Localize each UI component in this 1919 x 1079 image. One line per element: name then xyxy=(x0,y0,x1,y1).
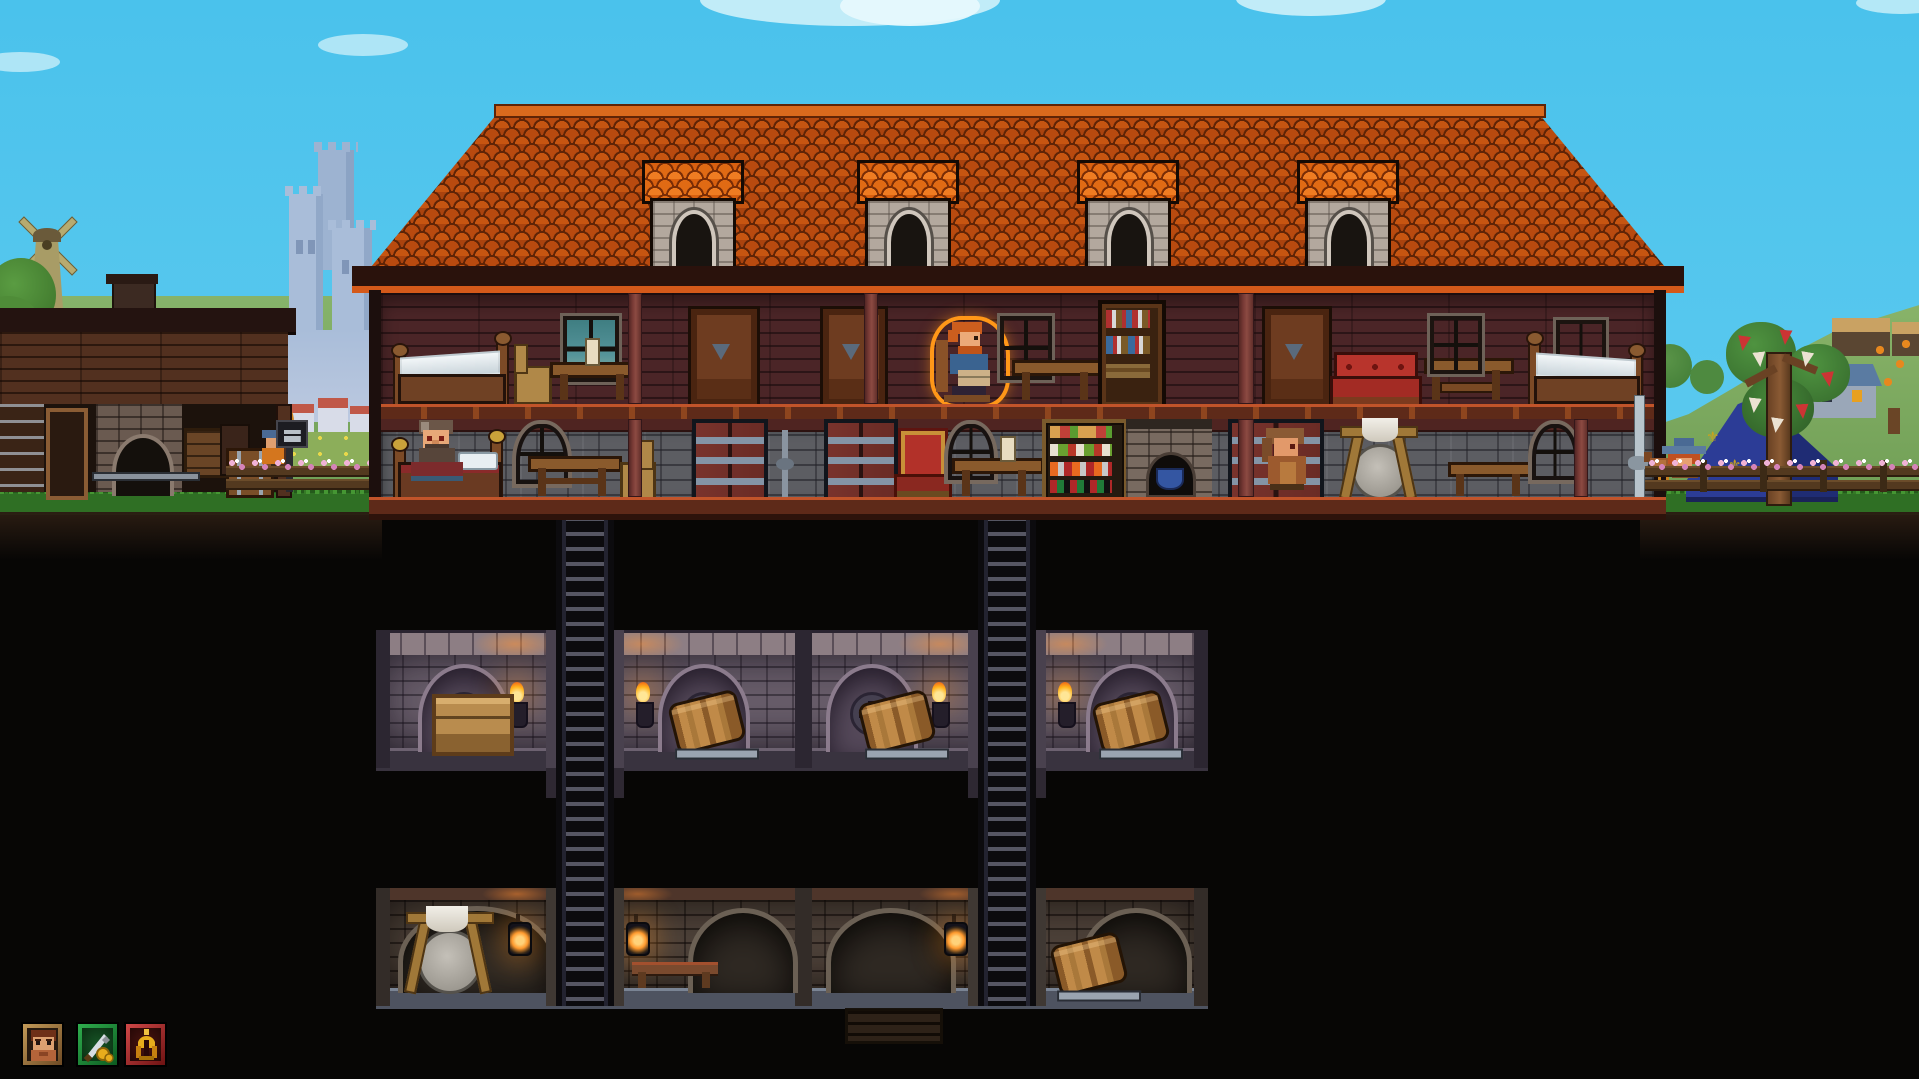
wall-pillar xyxy=(628,293,642,404)
eaves-fascia xyxy=(352,266,1684,286)
shaft-jamb xyxy=(614,630,624,768)
coin xyxy=(105,1054,113,1062)
shaft-jamb xyxy=(546,630,556,768)
steel-door[interactable] xyxy=(824,419,898,505)
sword-coins-button[interactable] xyxy=(76,1022,119,1067)
table-leg xyxy=(1018,470,1026,496)
wall-pillar xyxy=(1238,293,1254,404)
castle-window xyxy=(308,240,315,254)
wall-pillar xyxy=(1574,419,1588,497)
wall-pillar xyxy=(628,419,642,497)
chair-back xyxy=(936,340,948,392)
dormer-window xyxy=(1107,210,1151,266)
hanging-lantern-icon xyxy=(624,914,648,958)
shaft-jamb xyxy=(546,888,556,1006)
table-leg xyxy=(1432,370,1440,400)
chair-seat xyxy=(944,395,990,402)
chair-back xyxy=(640,440,654,470)
forge-chimney-cap xyxy=(106,274,158,284)
dormer-window xyxy=(887,210,931,266)
ladder-shaft[interactable] xyxy=(556,517,614,1006)
dormer-window xyxy=(1327,210,1371,266)
forge-bench-rail xyxy=(92,472,200,481)
eaves-lit-edge xyxy=(352,286,1684,293)
cloth-on-grindstone xyxy=(426,906,468,932)
ladder[interactable] xyxy=(562,517,608,1006)
basement2-right-wall xyxy=(1194,888,1208,1006)
villager-eye xyxy=(974,336,978,340)
basement2-left-wall xyxy=(376,888,390,1006)
shaft-frame-below xyxy=(1036,768,1046,798)
pantry-row-food xyxy=(1050,426,1112,438)
table-shelf xyxy=(540,478,604,484)
fence-rail xyxy=(1645,480,1919,491)
flower-row xyxy=(228,458,376,472)
villager-belt xyxy=(1270,484,1304,490)
upper-window xyxy=(1430,316,1482,374)
bench-leg xyxy=(1456,474,1464,496)
castle-window xyxy=(342,260,349,274)
wardrobe[interactable] xyxy=(688,306,760,408)
forge-door-frame[interactable] xyxy=(46,408,88,500)
dwarf-eye xyxy=(427,436,432,441)
basement1-lintel xyxy=(376,630,1208,655)
shaft-jamb xyxy=(968,630,978,768)
table-leg xyxy=(962,470,970,496)
bench-leg xyxy=(1512,474,1520,496)
flower-row xyxy=(1648,458,1918,472)
table-leg xyxy=(560,374,568,400)
basement2-lintel xyxy=(376,888,1208,900)
sword-coins-button-face xyxy=(82,1028,113,1061)
table-leg xyxy=(538,468,546,496)
gold-helmet-icon xyxy=(130,1028,163,1063)
basement1-left-wall xyxy=(376,630,390,768)
cauldron xyxy=(1156,468,1184,490)
villager-legs xyxy=(952,386,986,395)
dwarf-portrait-icon xyxy=(27,1028,60,1063)
ladder[interactable] xyxy=(984,517,1030,1006)
hanging-lantern-icon xyxy=(942,914,966,958)
portrait-eye xyxy=(36,1041,40,1045)
bed-frame[interactable] xyxy=(398,374,506,404)
hooded-villager[interactable] xyxy=(1258,428,1318,498)
dwarf-belt xyxy=(411,476,463,481)
helmet-slit xyxy=(144,1040,149,1056)
shaft-frame-below xyxy=(968,768,978,798)
portrait-mouth xyxy=(39,1052,48,1056)
shaft-frame-below xyxy=(614,768,624,798)
anvil-sign xyxy=(276,420,308,448)
table-leg xyxy=(598,468,606,496)
castle-window xyxy=(296,240,303,254)
shaft-jamb xyxy=(1036,888,1046,1006)
pantry-row-bottles xyxy=(1050,480,1112,493)
forge-roof xyxy=(0,308,296,335)
portrait-brow xyxy=(35,1039,41,1041)
bed-frame[interactable] xyxy=(1534,376,1640,404)
basement1-right-wall xyxy=(1194,630,1208,768)
bench[interactable] xyxy=(1440,382,1498,393)
shaft-jamb xyxy=(1036,630,1046,768)
blue-stained-window xyxy=(1532,424,1578,480)
helmet-base xyxy=(139,1056,154,1060)
portrait-brow xyxy=(46,1039,52,1041)
cloud xyxy=(1236,0,1386,16)
tool-rack[interactable] xyxy=(0,404,44,492)
portrait-button-face xyxy=(27,1028,58,1061)
castle-tower-crenellation xyxy=(314,142,358,152)
house-base-band xyxy=(369,497,1666,520)
chair-back xyxy=(514,344,528,374)
fruit-tree xyxy=(1868,330,1919,416)
table-leg xyxy=(1080,372,1088,400)
hat-brim xyxy=(1662,446,1706,454)
ladder-shaft[interactable] xyxy=(978,517,1036,1006)
castle-tower-crenellation xyxy=(328,220,376,230)
portrait-button[interactable] xyxy=(21,1022,64,1067)
shaft-jamb xyxy=(968,888,978,1006)
table-leg xyxy=(1492,370,1500,400)
hanging-lantern-icon xyxy=(506,914,530,958)
villager-apron xyxy=(1280,462,1296,484)
villager-eye xyxy=(1290,444,1295,449)
wardrobe[interactable] xyxy=(1262,306,1332,408)
pole-knob xyxy=(776,458,794,470)
fruit-tree-trunk xyxy=(1888,408,1900,434)
portrait-eye xyxy=(47,1041,51,1045)
cloud xyxy=(318,34,408,56)
villager-hair xyxy=(948,330,958,342)
sword-coins-icon xyxy=(82,1028,115,1063)
shaft-frame-below xyxy=(546,768,556,798)
cloud xyxy=(1856,0,1919,14)
cloud xyxy=(0,52,60,72)
wall-torch-icon xyxy=(632,682,654,728)
gold-helmet-button[interactable] xyxy=(124,1022,167,1067)
basement1-divider-wall xyxy=(795,630,812,768)
storage-crate[interactable] xyxy=(432,694,514,756)
pantry-row-food xyxy=(1050,444,1112,456)
cellar-bench-leg xyxy=(702,972,710,988)
dwarf-eye xyxy=(439,436,444,441)
house-window-lit xyxy=(1852,390,1862,402)
pantry-row-bottles xyxy=(1050,462,1112,476)
candle xyxy=(1000,436,1016,462)
village-house-red-roof xyxy=(318,398,348,434)
dwarf-in-bed[interactable] xyxy=(405,418,475,498)
wall-pillar xyxy=(1238,419,1254,497)
fence-rail xyxy=(226,479,376,490)
cloth-on-grindstone xyxy=(1362,418,1398,442)
table-leg xyxy=(616,374,624,400)
castle-tower-crenellation xyxy=(285,186,327,196)
candle xyxy=(585,338,600,366)
roof-ridge xyxy=(494,104,1546,118)
book-line xyxy=(958,376,990,378)
steel-door[interactable] xyxy=(692,419,768,505)
soil-left xyxy=(0,512,382,560)
table-leg xyxy=(1022,372,1030,400)
house-left-trim xyxy=(369,290,381,517)
shaft-jamb xyxy=(614,888,624,1006)
buried-crate xyxy=(845,1008,943,1044)
soil-right xyxy=(1640,512,1919,560)
reading-villager-selected[interactable] xyxy=(936,322,1006,404)
dwarf-beard xyxy=(419,448,455,464)
bookshelf-row xyxy=(1106,364,1150,378)
windmill-hub xyxy=(42,240,52,250)
house-roof xyxy=(352,112,1684,290)
ground-ceiling-beam xyxy=(381,419,1654,432)
wall-pillar xyxy=(864,293,878,404)
game-viewport: ⚜ ⚜ ⚜ xyxy=(0,0,1919,1079)
wall-torch-icon xyxy=(1054,682,1076,728)
gold-helmet-button-face xyxy=(130,1028,161,1061)
bookshelf-row xyxy=(1106,336,1150,354)
helmet-plume xyxy=(144,1029,149,1035)
dormer-window xyxy=(672,210,716,266)
tree-round xyxy=(1690,360,1724,394)
bookshelf-row xyxy=(1106,310,1150,328)
cellar-bench-leg xyxy=(638,972,646,988)
forge-wall xyxy=(0,332,288,404)
